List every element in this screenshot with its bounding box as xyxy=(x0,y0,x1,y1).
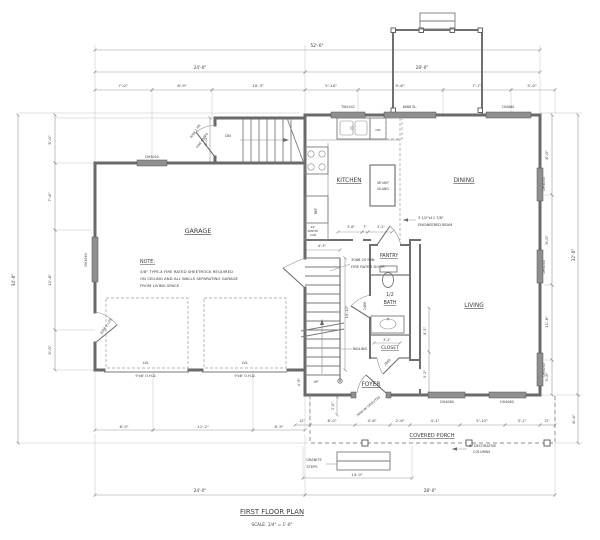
dim-label: 28'-0" xyxy=(424,488,437,493)
dim-label: 4'-6" xyxy=(368,418,377,423)
dim-label: 9'-0" xyxy=(544,235,549,244)
plan-title: FIRST FLOOR PLAN xyxy=(240,508,304,516)
garage-door-label: 9'x8' O.H.D. xyxy=(234,374,255,378)
door-note: FIRE RATED DOOR xyxy=(351,265,385,269)
room-label-half-bath: 1/2 xyxy=(386,292,394,298)
dim-overall-right: 32'-0" xyxy=(571,249,576,262)
room-label-dining: DINING xyxy=(453,178,475,184)
room-label-covered-porch: COVERED PORCH xyxy=(409,433,454,439)
window-label: DH3050 xyxy=(542,177,546,190)
room-label-closet: CLOSET xyxy=(381,345,399,351)
dim-label: 7" xyxy=(363,225,367,229)
window-label: DH4060 xyxy=(500,400,513,404)
corner-cabinet xyxy=(386,118,402,139)
granite-steps xyxy=(337,461,390,470)
room-label-garage: GARAGE xyxy=(185,227,212,235)
kitchen-island xyxy=(370,165,395,206)
bath-fixtures xyxy=(371,266,404,333)
dim-label: 10'-3" xyxy=(252,83,264,88)
note-line: FROM LIVING SPACE xyxy=(140,283,180,288)
overhead-door-track xyxy=(106,298,188,368)
dining-window xyxy=(486,112,531,118)
garage-door-label: 9'x8' O.H.D. xyxy=(135,374,156,378)
note-line: 5/8" TYPE-X FIRE RATED SHEETROCK REQUIRE… xyxy=(140,269,233,274)
dim-label: 3'-2" xyxy=(377,225,385,229)
island-label: 36"x60" xyxy=(377,181,390,185)
burner xyxy=(308,164,314,170)
dim-label: 5'-10" xyxy=(325,83,337,88)
plan-scale: SCALE: 1/4" = 1'-0" xyxy=(252,522,293,527)
garage-side-window xyxy=(92,237,98,282)
dim-overall-left: 34'-0" xyxy=(11,274,16,287)
sink-bowl xyxy=(355,121,367,135)
window-label: DH3050 xyxy=(542,363,546,376)
dim-label: 5'-10" xyxy=(476,418,488,423)
floor-plan-sheet: 52'-0"24'-0"28'-0"7'-0"6'-9"10'-3"5'-10"… xyxy=(0,0,600,540)
dim-label: 5'-0" xyxy=(527,83,536,88)
dim-garage-width: 24'-0" xyxy=(194,65,207,70)
burner xyxy=(308,151,314,157)
stair-direction-label: UP xyxy=(314,380,320,384)
living-front-window xyxy=(428,392,465,398)
kitchen-window xyxy=(331,112,365,118)
sink-bowl xyxy=(340,121,353,135)
beam-label: LVL xyxy=(143,361,149,365)
burner xyxy=(319,151,325,157)
floor-plan-drawing: 52'-0"24'-0"28'-0"7'-0"6'-9"10'-3"5'-10"… xyxy=(0,0,600,540)
refrigerator-label: REF xyxy=(314,208,318,214)
dim-label: 4'-1" xyxy=(431,418,440,423)
front-door-sidelite xyxy=(351,392,356,398)
dim-label: 11'-6" xyxy=(47,274,52,286)
steps-label: STEPS xyxy=(307,465,319,469)
room-label-living: LIVING xyxy=(464,303,484,309)
windows xyxy=(92,112,543,398)
dim-label: 24'-0" xyxy=(194,488,207,493)
garage-window xyxy=(137,160,167,166)
bath-door-leaf xyxy=(351,306,370,318)
vanity xyxy=(371,316,404,333)
dim-label: 6'-9" xyxy=(177,83,186,88)
vanity-sink xyxy=(380,319,396,329)
dim-label: 12" xyxy=(544,419,550,423)
dim-label: 5'-0" xyxy=(47,135,52,144)
dim-label: 3'-6" xyxy=(347,225,355,229)
beam-note: ENGINEERED BEAM xyxy=(418,223,452,227)
steps-label: GRANITE xyxy=(306,458,321,462)
dim-label: 4'-9" xyxy=(297,377,301,386)
room-label-kitchen: KITCHEN xyxy=(336,178,361,184)
porch-column xyxy=(362,440,368,446)
porch-column xyxy=(544,440,550,446)
dim-label: 7'-0" xyxy=(118,83,127,88)
note-heading: NOTE: xyxy=(140,259,155,265)
dim-label: 11'-6" xyxy=(544,316,549,328)
room-label-pantry: PANTRY xyxy=(380,253,398,259)
window-label: DH3050 xyxy=(542,260,546,273)
dim-label: 4'-3" xyxy=(318,244,327,248)
dim-label: 2'-6" xyxy=(396,418,405,423)
dim-label: 12" xyxy=(299,419,305,423)
window-label: DH3040 xyxy=(145,155,158,159)
overhead-door-track xyxy=(204,298,286,368)
dim-label: 5'-0" xyxy=(47,345,52,354)
door-note: 3068 20 MIN xyxy=(351,258,375,262)
dim-label: 11'-2" xyxy=(197,424,209,429)
dim-label: 4'-3" xyxy=(423,327,427,335)
beam-note: 3 1/2"x11 7/8" xyxy=(418,216,444,220)
granite-steps xyxy=(337,452,390,461)
dim-label: 6'-5" xyxy=(275,424,284,429)
living-front-window xyxy=(489,392,526,398)
cabinet-label: CAB xyxy=(310,233,316,237)
note-line: ON CEILING AND ALL WALLS SEPARATING GARA… xyxy=(140,276,238,281)
main-stairs xyxy=(301,258,352,383)
dim-label: 2'-0" xyxy=(331,402,335,410)
dim-label: 6'-0" xyxy=(328,418,337,423)
dim-label: 10'-10" xyxy=(345,305,349,318)
dim-label: 9'-6" xyxy=(395,83,404,88)
window-label: DH4060 xyxy=(440,400,453,404)
dim-label: 6'-5" xyxy=(120,424,129,429)
columns-note: COLUMNS xyxy=(473,450,491,454)
dim-label: 7'-7" xyxy=(472,83,481,88)
dim-label: 3'-1" xyxy=(518,418,527,423)
basement-stairs xyxy=(240,118,303,163)
room-label-half-bath: BATH xyxy=(384,300,397,306)
dim-label: 6'-4" xyxy=(571,414,576,423)
burner xyxy=(319,164,325,170)
island-label: ISLAND xyxy=(377,187,389,191)
dim-label: 14'-0" xyxy=(351,472,363,477)
dishwasher-label: DW xyxy=(375,128,380,132)
range xyxy=(305,147,328,174)
door-label: 6068 SL. xyxy=(403,105,417,109)
dim-label: 7'-6" xyxy=(47,192,52,201)
room-label-foyer: FOYER xyxy=(362,382,381,388)
dim-label: 3'-2" xyxy=(383,338,391,342)
fire-door-leaf xyxy=(283,268,305,288)
garage-overhead-doors xyxy=(106,298,286,368)
window-label: TW2442 xyxy=(340,105,355,109)
stair-direction-label: DN xyxy=(225,134,231,138)
exterior-walls xyxy=(95,115,540,395)
door-label: 2868 xyxy=(383,358,391,366)
dim-label: 5'-2" xyxy=(423,370,427,378)
columns-note: 6" DECORATIVE xyxy=(469,444,496,448)
dim-label: 8'-0" xyxy=(544,150,549,159)
window-label: 2X4060 xyxy=(502,105,515,109)
dim-house-width: 28'-0" xyxy=(416,65,429,70)
door-label: 2468 xyxy=(363,302,367,310)
door-label: 3068 W/ SIDELITES xyxy=(356,395,381,417)
railing-label: RAILING xyxy=(353,347,368,351)
beam-label: LVL xyxy=(242,361,248,365)
dim-overall-width: 52'-0" xyxy=(310,43,323,49)
front-door-sidelite xyxy=(386,392,391,398)
rear-deck xyxy=(391,13,483,115)
window-label: DH3040 xyxy=(84,253,88,266)
